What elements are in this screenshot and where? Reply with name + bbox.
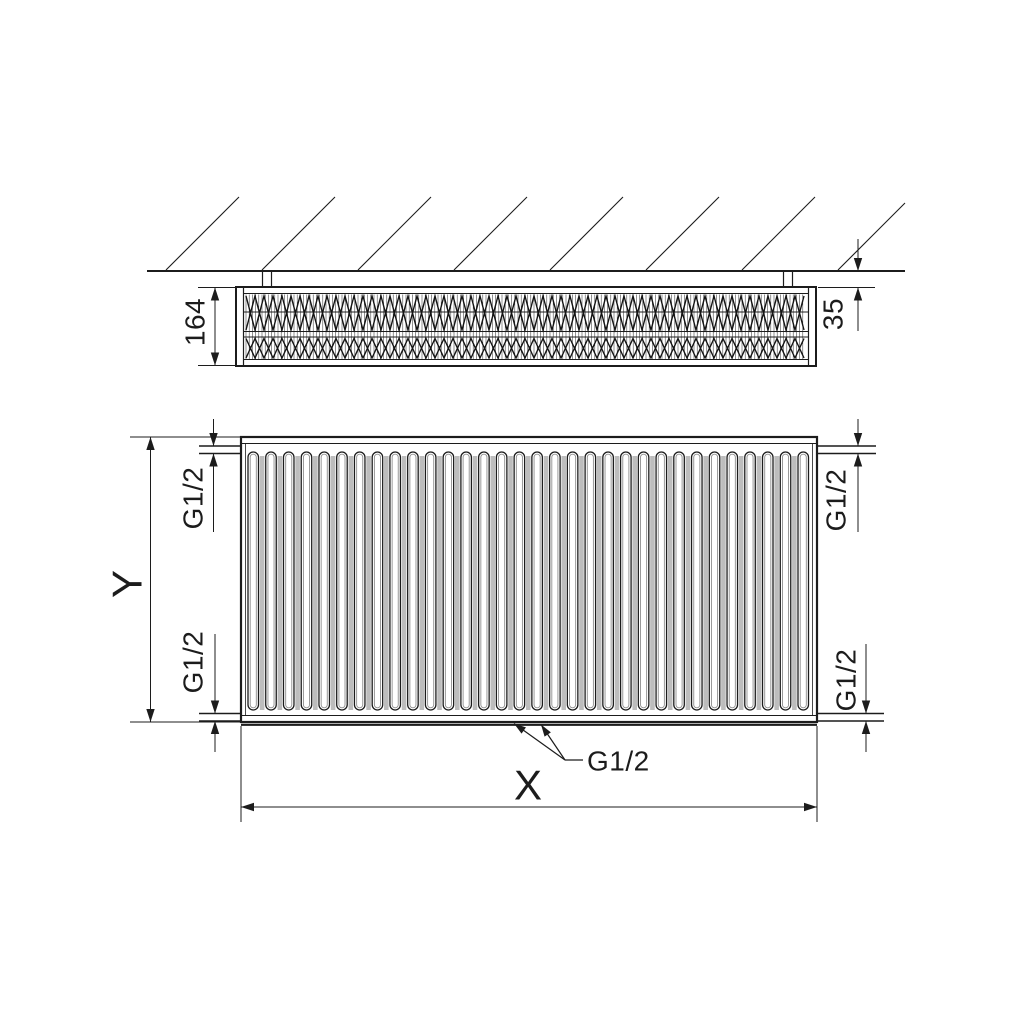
thread-label-top-right: G1/2 [821,469,852,532]
thread-dimension-bottom-left [211,634,219,752]
thread-dimension-top-right [854,419,862,532]
thread-label-bottom-center: G1/2 [587,746,650,777]
height-dimension-label: Y [104,570,151,598]
thread-dimension-top-left [209,419,217,532]
thread-dimension-bottom-right [862,644,870,752]
radiator-technical-drawing: 164 35 G1/2 G1/2 G1/2 G1/2 Y X G1/2 [0,0,1024,1024]
thread-label-bottom-right: G1/2 [831,649,862,712]
mounting-brackets [263,271,793,288]
thread-label-top-left: G1/2 [178,467,209,530]
thread-leader-bottom-center [514,724,583,761]
width-dimension-label: X [514,762,542,809]
thread-label-bottom-left: G1/2 [178,631,209,694]
wall-clearance-dimension-label: 35 [818,298,849,330]
wall-hatch-lines [166,197,905,270]
depth-dimension-label: 164 [180,298,211,346]
radiator-technical-drawing-page: 164 35 G1/2 G1/2 G1/2 G1/2 Y X G1/2 [0,0,1024,1024]
